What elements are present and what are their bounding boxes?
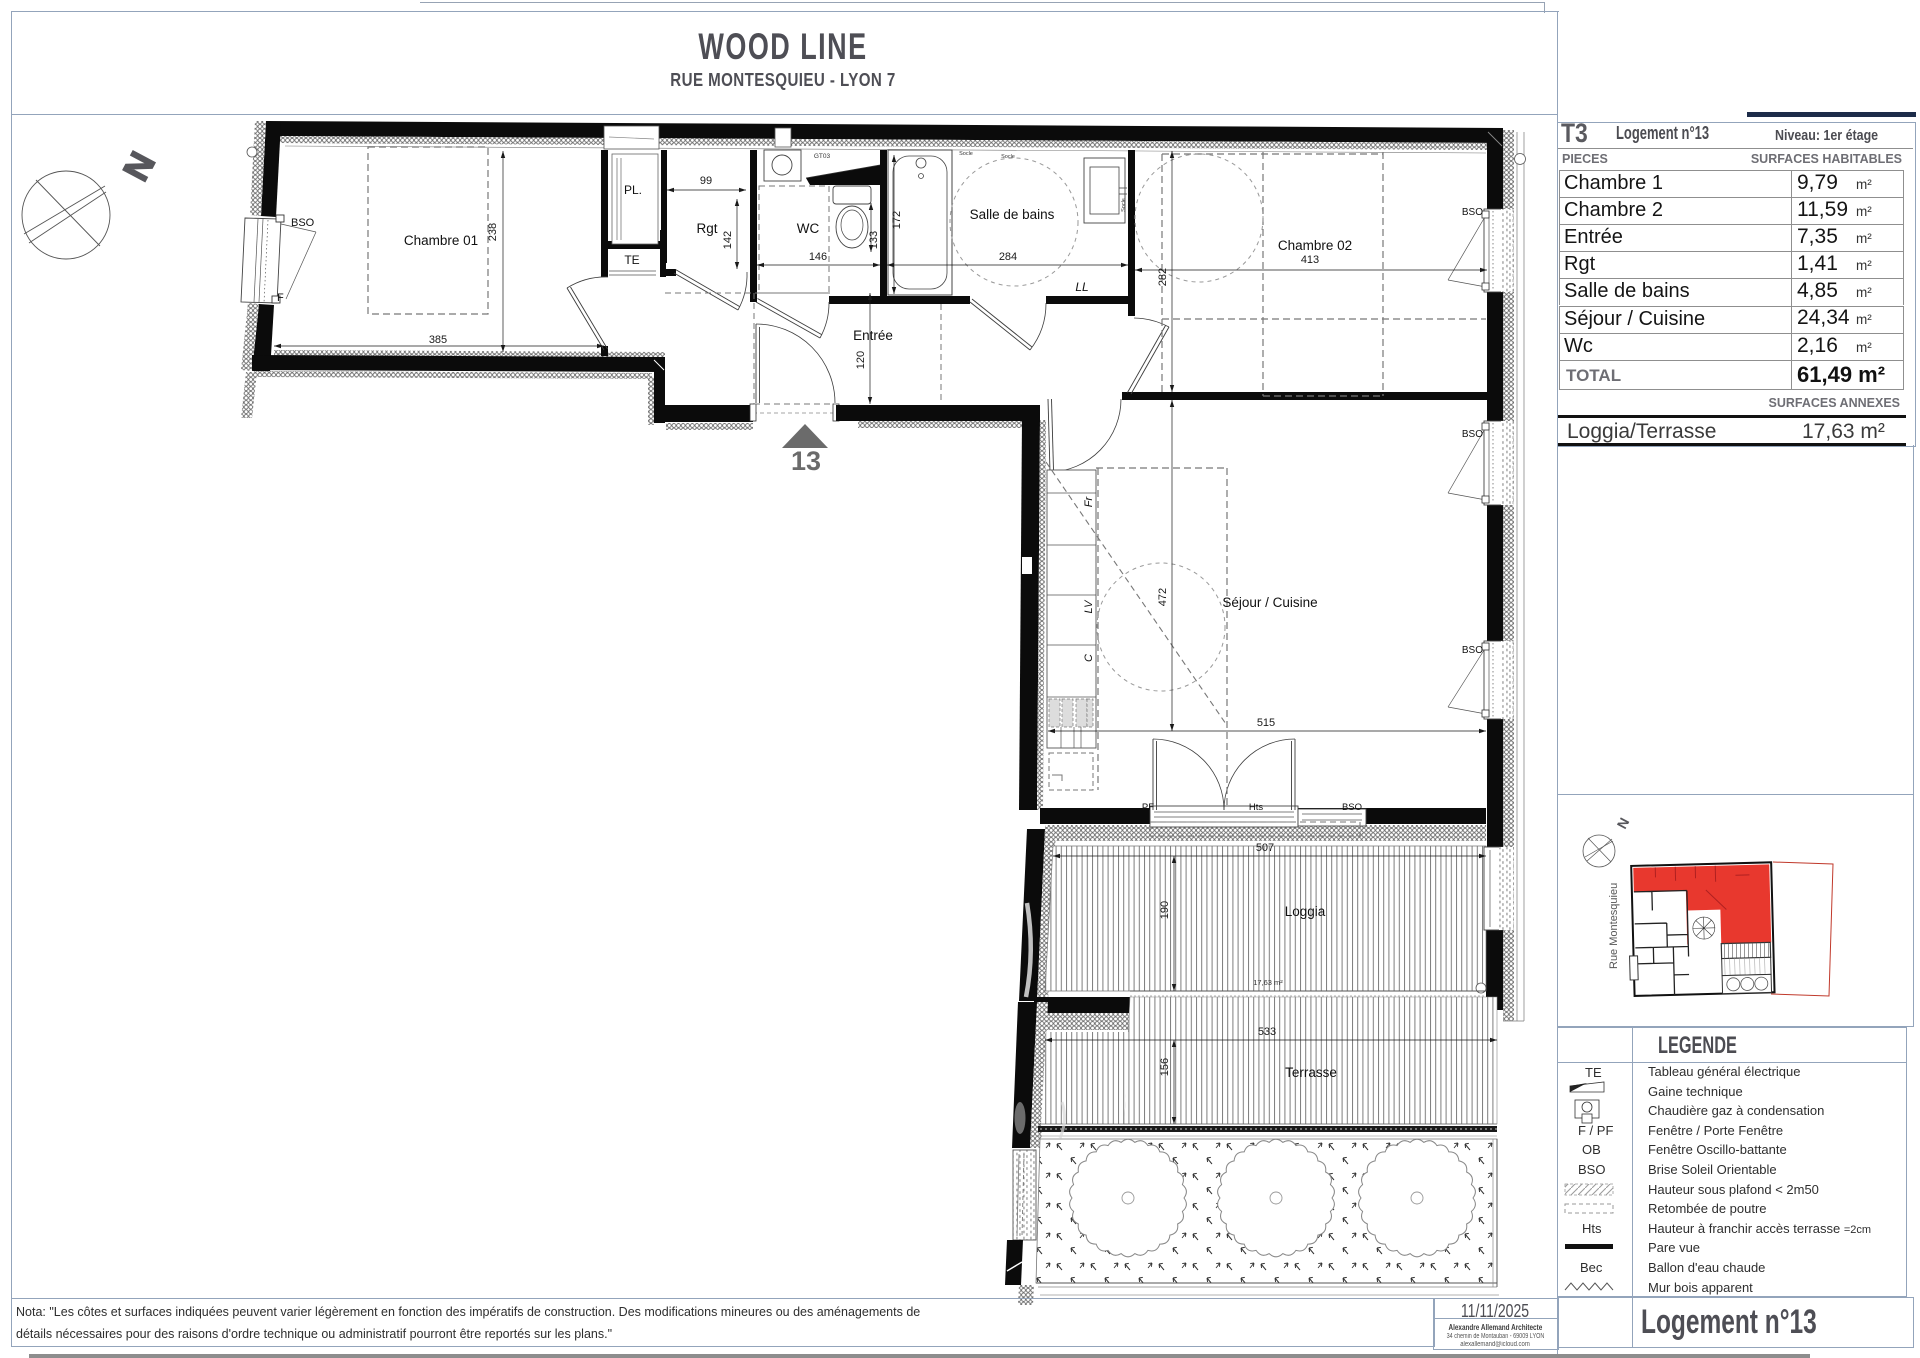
svg-text:385: 385 xyxy=(429,334,447,346)
svg-text:LV: LV xyxy=(1083,599,1095,614)
svg-text:133: 133 xyxy=(868,231,880,249)
svg-text:BSO: BSO xyxy=(1462,645,1483,656)
svg-text:142: 142 xyxy=(722,231,734,249)
svg-text:PF: PF xyxy=(1142,802,1154,813)
svg-text:190: 190 xyxy=(1159,901,1171,919)
svg-text:Rue Montesquieu: Rue Montesquieu xyxy=(1608,883,1620,969)
svg-text:515: 515 xyxy=(1257,717,1275,729)
svg-text:146: 146 xyxy=(809,251,827,263)
svg-text:Hts: Hts xyxy=(1249,802,1264,813)
svg-text:Rgt: Rgt xyxy=(696,221,717,236)
svg-text:Séjour / Cuisine: Séjour / Cuisine xyxy=(1222,595,1317,610)
svg-text:Chambre 01: Chambre 01 xyxy=(404,233,478,248)
svg-text:Fr: Fr xyxy=(1083,495,1095,507)
svg-text:284: 284 xyxy=(999,251,1017,263)
svg-text:Salle de bains: Salle de bains xyxy=(970,207,1055,222)
svg-text:13: 13 xyxy=(791,446,821,476)
svg-text:Chambre 02: Chambre 02 xyxy=(1278,238,1352,253)
svg-text:Socle: Socle xyxy=(1001,154,1015,160)
svg-text:Socle: Socle xyxy=(1121,198,1127,212)
svg-text:533: 533 xyxy=(1258,1026,1276,1038)
svg-text:LL: LL xyxy=(1075,280,1088,294)
svg-text:172: 172 xyxy=(891,211,903,229)
svg-text:C: C xyxy=(1083,654,1095,662)
svg-text:GT03: GT03 xyxy=(814,153,831,160)
svg-text:472: 472 xyxy=(1157,588,1169,606)
svg-text:F: F xyxy=(277,292,284,304)
svg-text:Socle: Socle xyxy=(959,151,973,157)
svg-text:156: 156 xyxy=(1159,1058,1171,1076)
svg-text:BSO: BSO xyxy=(1462,207,1483,218)
svg-text:BSO: BSO xyxy=(291,217,315,229)
svg-text:282: 282 xyxy=(1157,268,1169,286)
svg-text:413: 413 xyxy=(1301,254,1319,266)
svg-text:TE: TE xyxy=(624,253,639,267)
svg-text:17,63 m²: 17,63 m² xyxy=(1253,978,1283,987)
svg-text:N: N xyxy=(115,145,163,187)
svg-text:PL.: PL. xyxy=(624,183,642,197)
svg-text:120: 120 xyxy=(855,351,867,369)
svg-text:BSO: BSO xyxy=(1462,429,1483,440)
svg-text:99: 99 xyxy=(700,175,712,187)
svg-text:507: 507 xyxy=(1256,842,1274,854)
svg-text:Entrée: Entrée xyxy=(853,328,893,343)
svg-text:WC: WC xyxy=(797,221,820,236)
svg-text:238: 238 xyxy=(487,223,499,241)
svg-text:Terrasse: Terrasse xyxy=(1285,1065,1337,1080)
svg-text:BSO: BSO xyxy=(1342,802,1362,813)
svg-text:N: N xyxy=(1614,815,1633,831)
svg-text:Loggia: Loggia xyxy=(1285,904,1326,919)
